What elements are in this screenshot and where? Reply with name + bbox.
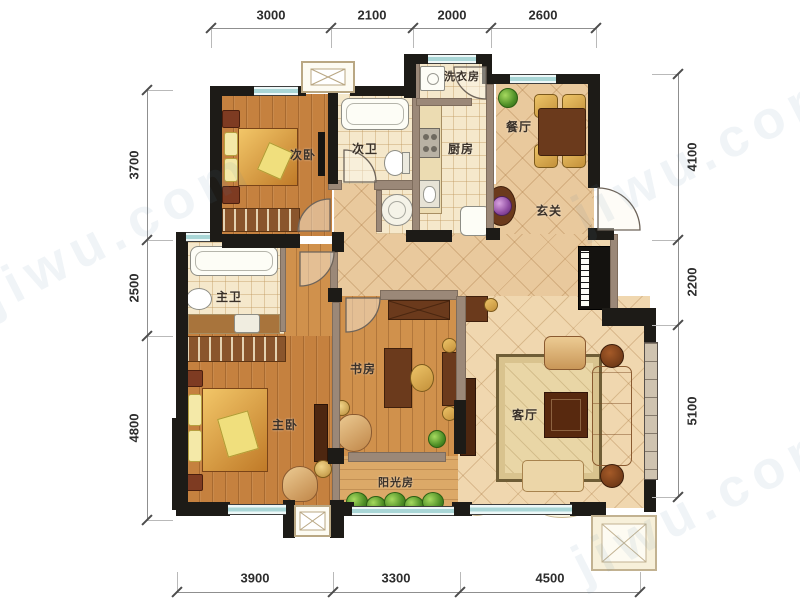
wall [376, 190, 382, 232]
dimension-label: 3300 [382, 571, 411, 586]
dimension-label: 3700 [127, 151, 142, 180]
pillow [224, 158, 238, 182]
piano-keys [581, 251, 589, 307]
dimension-line-left [147, 90, 148, 520]
chaise-bench [522, 460, 584, 492]
pillow [224, 132, 238, 156]
wall [482, 54, 492, 84]
elevator-shaft [592, 516, 656, 570]
dimension-line-bottom [177, 592, 640, 593]
window [254, 86, 298, 96]
desk-chair [410, 364, 434, 392]
dimension-label: 2500 [127, 274, 142, 303]
window [644, 342, 658, 480]
dimension-extension [147, 240, 173, 241]
dimension-extension [147, 90, 173, 91]
room-label-kitchen: 厨房 [448, 140, 474, 157]
wall [492, 74, 512, 84]
side-table [600, 344, 624, 368]
wall [222, 234, 300, 248]
dimension-extension [596, 28, 597, 48]
dimension-label: 2600 [529, 8, 558, 23]
bathtub [341, 98, 409, 130]
plant [428, 430, 446, 448]
wall [644, 476, 656, 512]
wall [452, 502, 472, 516]
wall [332, 232, 344, 252]
wall [172, 418, 188, 510]
door-arc-entry [598, 188, 640, 230]
window [510, 74, 556, 84]
floor-corridor [284, 244, 332, 336]
wall [328, 448, 344, 464]
room-label-dining: 餐厅 [506, 118, 532, 135]
stool [484, 298, 498, 312]
sink-basin [388, 201, 406, 219]
plant [498, 88, 518, 108]
wardrobe [222, 208, 300, 232]
room-label-master-bedroom: 主卧 [272, 416, 298, 433]
armchair [544, 336, 586, 370]
tv [318, 132, 325, 176]
room-label-sunroom: 阳光房 [378, 474, 414, 490]
room-label-entry: 玄关 [536, 202, 562, 219]
kitchen-sink [418, 180, 440, 208]
nightstand [222, 110, 240, 128]
dining-table [538, 108, 586, 156]
dimension-label: 4800 [127, 414, 142, 443]
dimension-label: 4100 [685, 143, 700, 172]
room-label-living: 客厅 [512, 406, 538, 423]
coffee-table-top [551, 399, 581, 431]
wall [486, 84, 494, 232]
flower-pot [492, 196, 512, 216]
wall [588, 228, 614, 240]
room-label-laundry: 洗衣房 [444, 68, 480, 84]
dimension-label: 5100 [685, 397, 700, 426]
dimension-line-right [678, 74, 679, 497]
room-label-study: 书房 [350, 360, 376, 377]
armchair [336, 414, 372, 452]
dimension-extension [331, 28, 332, 48]
bookshelf [388, 300, 450, 320]
dimension-extension [147, 520, 173, 521]
dimension-extension [491, 28, 492, 48]
dimension-label: 3000 [257, 8, 286, 23]
wall [588, 74, 600, 188]
wall [374, 180, 416, 190]
dimension-label: 4500 [536, 571, 565, 586]
wall [380, 290, 458, 300]
coffee-table [544, 392, 588, 438]
wall [332, 302, 340, 450]
dimension-extension [147, 336, 173, 337]
dimension-extension [413, 28, 414, 48]
window [186, 232, 210, 242]
wall [210, 86, 222, 242]
nightstand [222, 186, 240, 204]
wall [570, 502, 606, 516]
wall [330, 500, 344, 538]
pedestal-sink [381, 194, 413, 226]
wall [280, 244, 286, 332]
vanity-sink [234, 314, 260, 333]
dimension-label: 2100 [358, 8, 387, 23]
washer-door [427, 73, 439, 85]
dimension-label: 3900 [241, 571, 270, 586]
dimension-label: 2200 [685, 268, 700, 297]
armchair [282, 466, 318, 502]
wall [486, 228, 500, 240]
room-label-secondary-bedroom: 次卧 [290, 146, 316, 163]
pillow [188, 430, 202, 462]
wall [416, 98, 472, 106]
bathtub-inner [195, 251, 273, 271]
bay-window [295, 506, 330, 536]
pillow [188, 394, 202, 426]
room-label-master-bath: 主卫 [216, 288, 242, 305]
desk [384, 348, 412, 408]
wall [348, 452, 446, 462]
window [228, 504, 286, 515]
walkin-closet [186, 336, 286, 362]
piano [578, 246, 612, 310]
bathtub [190, 246, 278, 276]
dimension-label: 2000 [438, 8, 467, 23]
bathtub-inner [346, 103, 404, 125]
wall [454, 400, 466, 454]
tv-cabinet [314, 404, 328, 462]
window [428, 54, 476, 64]
burners [423, 134, 429, 140]
toilet-tank [402, 152, 410, 174]
window [352, 506, 454, 516]
floor-plan: jiwu.com jiwu.com jiwu.com [0, 0, 800, 600]
side-table [600, 464, 624, 488]
wall [456, 296, 466, 402]
toilet [186, 288, 212, 310]
stove [418, 128, 440, 158]
sofa [592, 366, 632, 466]
window [470, 504, 572, 515]
wall [610, 234, 618, 312]
wall [350, 86, 412, 96]
stool [442, 338, 457, 353]
washing-machine [420, 66, 445, 91]
wall [406, 230, 452, 242]
dimension-extension [211, 28, 212, 48]
sink-bowl [423, 186, 436, 203]
room-label-secondary-bath: 次卫 [352, 140, 378, 157]
wall [328, 86, 338, 184]
dimension-line-top [211, 28, 596, 29]
wall [404, 54, 430, 64]
wall [328, 288, 342, 302]
